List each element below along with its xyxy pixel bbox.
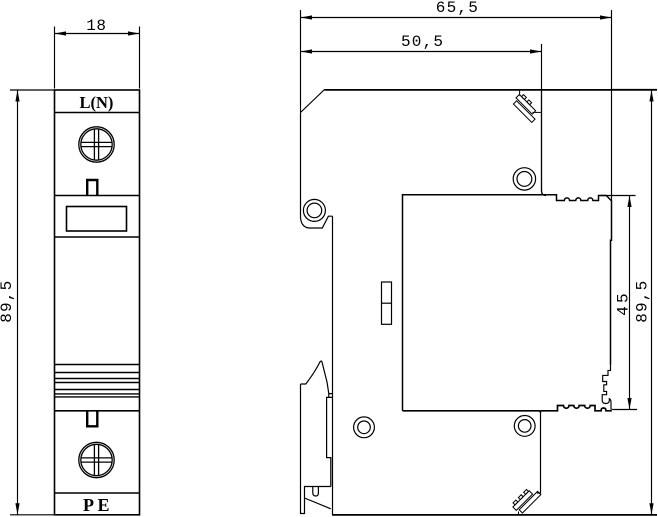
svg-text:89,5: 89,5 [0,280,16,323]
svg-text:89,5: 89,5 [633,280,651,323]
svg-text:L(N): L(N) [80,93,114,112]
svg-text:45: 45 [615,290,633,316]
svg-text:P E: P E [83,495,110,515]
svg-text:50,5: 50,5 [401,33,444,51]
svg-text:65,5: 65,5 [436,0,479,17]
svg-text:18: 18 [86,17,106,35]
